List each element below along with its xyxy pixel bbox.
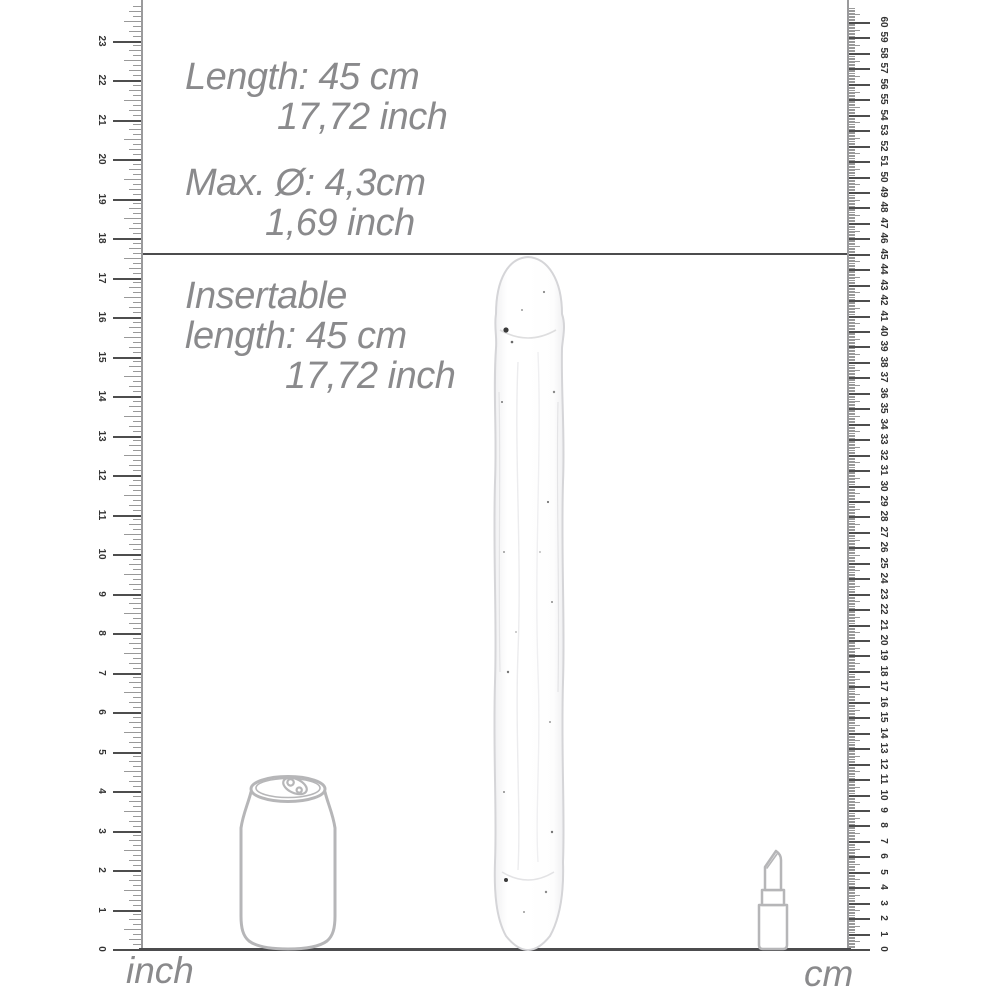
ruler-tick <box>849 941 860 942</box>
ruler-tick <box>849 858 855 859</box>
ruler-tick <box>849 926 860 927</box>
ruler-tick <box>849 45 860 46</box>
ruler-tick <box>129 426 141 427</box>
ruler-tick <box>849 509 860 510</box>
ruler-tick <box>849 227 855 228</box>
ruler-tick <box>849 78 855 79</box>
ruler-number: 30 <box>875 477 893 495</box>
ruler-tick <box>849 218 855 219</box>
ruler-tick <box>849 192 870 194</box>
ruler-tick <box>124 258 141 259</box>
ruler-tick <box>849 852 855 853</box>
ruler-tick <box>129 90 141 91</box>
ruler-tick <box>849 472 855 473</box>
ruler-tick <box>849 725 860 726</box>
product-dimension-diagram: 01234567891011121314151617181920212223 0… <box>0 0 1000 1000</box>
ruler-tick <box>849 84 870 86</box>
ruler-tick <box>849 770 855 771</box>
ruler-tick <box>849 711 855 712</box>
ruler-number: 38 <box>875 353 893 371</box>
ruler-tick <box>849 898 855 899</box>
ruler-tick <box>133 174 141 175</box>
ruler-tick <box>849 512 855 513</box>
ruler-tick <box>849 818 860 819</box>
ruler-tick <box>849 334 855 335</box>
ruler-tick <box>849 407 855 408</box>
ruler-tick <box>113 633 141 635</box>
ruler-tick <box>133 579 141 580</box>
ruler-tick <box>849 76 860 77</box>
ruler-tick <box>849 445 855 446</box>
ruler-tick <box>849 294 855 295</box>
ruler-tick <box>849 278 855 279</box>
ruler-tick <box>133 727 141 728</box>
ruler-tick <box>849 118 855 119</box>
ruler-tick <box>113 199 141 201</box>
ruler-tick <box>849 280 855 281</box>
ruler-tick <box>849 139 855 140</box>
ruler-tick <box>849 439 870 441</box>
ruler-tick <box>849 827 855 828</box>
ruler-tick <box>849 699 855 700</box>
ruler-tick <box>849 88 855 89</box>
ruler-tick <box>849 243 855 244</box>
ruler-tick <box>124 929 141 930</box>
ruler-tick <box>849 288 855 289</box>
ruler-tick <box>849 25 855 26</box>
ruler-tick <box>133 105 141 106</box>
ruler-tick <box>849 53 870 55</box>
ruler-tick <box>133 16 141 17</box>
ruler-tick <box>129 544 141 545</box>
ruler-tick <box>849 136 855 137</box>
ruler-tick <box>849 232 855 233</box>
ruler-tick <box>849 683 855 684</box>
ruler-number: 5 <box>93 743 111 761</box>
ruler-tick <box>849 113 855 114</box>
ruler-tick <box>849 47 855 48</box>
ruler-number: 21 <box>875 616 893 634</box>
ruler-tick <box>849 694 860 695</box>
ruler-tick <box>849 402 855 403</box>
ruler-tick <box>849 912 855 913</box>
ruler-tick <box>849 201 855 202</box>
ruler-tick <box>849 702 870 704</box>
ruler-tick <box>849 198 855 199</box>
ruler-tick <box>849 59 855 60</box>
ruler-tick <box>849 436 855 437</box>
ruler-tick <box>849 427 855 428</box>
inch-ruler: 01234567891011121314151617181920212223 <box>88 0 143 1000</box>
ruler-tick <box>849 838 855 839</box>
ruler-tick <box>849 319 855 320</box>
ruler-tick <box>849 70 855 71</box>
ruler-tick <box>849 371 855 372</box>
ruler-tick <box>849 561 855 562</box>
ruler-tick <box>133 539 141 540</box>
ruler-tick <box>849 404 855 405</box>
ruler-tick <box>849 112 855 113</box>
ruler-tick <box>113 673 141 675</box>
ruler-tick <box>849 271 855 272</box>
ruler-tick <box>849 623 855 624</box>
ruler-tick <box>129 584 141 585</box>
ruler-tick <box>849 226 855 227</box>
ruler-tick <box>849 821 855 822</box>
ruler-tick <box>133 65 141 66</box>
ruler-tick <box>849 946 855 947</box>
diameter-spec: Max. Ø: 4,3cm 1,69 inch <box>185 163 426 243</box>
ruler-tick <box>849 496 855 497</box>
ruler-tick <box>849 479 855 480</box>
ruler-tick <box>849 700 855 701</box>
ruler-tick <box>849 470 870 472</box>
ruler-tick <box>133 944 141 945</box>
ruler-number: 3 <box>875 894 893 912</box>
ruler-tick <box>133 421 141 422</box>
ruler-tick <box>849 713 855 714</box>
ruler-tick <box>849 748 870 750</box>
ruler-tick <box>849 214 855 215</box>
ruler-tick <box>849 640 870 642</box>
ruler-tick <box>849 163 855 164</box>
ruler-tick <box>113 278 141 280</box>
ruler-tick <box>849 244 855 245</box>
ruler-tick <box>849 628 855 629</box>
ruler-tick <box>849 240 855 241</box>
ruler-tick <box>849 172 855 173</box>
ruler-tick <box>849 181 855 182</box>
ruler-tick <box>113 317 141 319</box>
ruler-tick <box>849 847 855 848</box>
ruler-tick <box>849 864 860 865</box>
ruler-tick <box>129 268 141 269</box>
ruler-tick <box>849 419 855 420</box>
ruler-tick <box>849 674 855 675</box>
ruler-tick <box>133 75 141 76</box>
ruler-tick <box>849 798 855 799</box>
ruler-tick <box>849 481 855 482</box>
ruler-tick <box>849 31 855 32</box>
ruler-tick <box>849 903 870 905</box>
ruler-tick <box>849 405 855 406</box>
ruler-tick <box>849 87 855 88</box>
ruler-number: 45 <box>875 245 893 263</box>
ruler-tick <box>129 643 141 644</box>
ruler-tick <box>849 553 855 554</box>
ruler-tick <box>133 786 141 787</box>
ruler-tick <box>129 742 141 743</box>
ruler-tick <box>129 564 141 565</box>
ruler-tick <box>129 327 141 328</box>
ruler-tick <box>849 586 860 587</box>
ruler-tick <box>849 558 855 559</box>
ruler-tick <box>849 540 860 541</box>
ruler-tick <box>133 677 141 678</box>
ruler-tick <box>133 648 141 649</box>
ruler-tick <box>133 203 141 204</box>
ruler-tick <box>849 788 855 789</box>
ruler-tick <box>849 107 860 108</box>
ruler-tick <box>133 796 141 797</box>
ruler-tick <box>849 751 855 752</box>
lipstick-bullet <box>765 851 781 890</box>
ruler-tick <box>849 859 855 860</box>
ruler-tick <box>849 617 860 618</box>
ruler-tick <box>849 44 855 45</box>
ruler-tick <box>849 635 855 636</box>
ruler-tick <box>113 910 141 912</box>
dildo-body <box>494 257 564 950</box>
ruler-tick <box>113 870 141 872</box>
ruler-tick <box>133 263 141 264</box>
ruler-tick <box>849 513 855 514</box>
ruler-tick <box>849 254 870 256</box>
ruler-tick <box>849 892 855 893</box>
ruler-number: 34 <box>875 415 893 433</box>
ruler-tick <box>129 761 141 762</box>
ruler-tick <box>849 830 855 831</box>
ruler-tick <box>849 676 855 677</box>
ruler-tick <box>849 615 855 616</box>
ruler-tick <box>849 110 855 111</box>
ruler-tick <box>849 397 855 398</box>
ruler-tick <box>849 920 855 921</box>
ruler-tick <box>849 498 855 499</box>
ruler-tick <box>133 806 141 807</box>
ruler-tick <box>113 475 141 477</box>
ruler-tick <box>849 569 855 570</box>
ruler-tick <box>849 64 855 65</box>
ruler-tick <box>849 940 855 941</box>
ruler-tick <box>849 442 855 443</box>
ruler-tick <box>849 598 855 599</box>
ruler-number: 50 <box>875 168 893 186</box>
ruler-tick <box>849 717 870 719</box>
ruler-tick <box>849 221 855 222</box>
ruler-tick <box>849 67 855 68</box>
ruler-number: 10 <box>875 786 893 804</box>
ruler-tick <box>849 816 855 817</box>
ruler-tick <box>129 189 141 190</box>
ruler-tick <box>133 302 141 303</box>
ruler-tick <box>133 115 141 116</box>
ruler-tick <box>849 937 855 938</box>
ruler-tick <box>849 396 855 397</box>
ruler-tick <box>133 144 141 145</box>
ruler-tick <box>849 773 855 774</box>
ruler-tick <box>124 337 141 338</box>
ruler-number: 58 <box>875 44 893 62</box>
ruler-tick <box>849 538 855 539</box>
ruler-tick <box>849 790 855 791</box>
ruler-tick <box>133 55 141 56</box>
ruler-tick <box>849 845 855 846</box>
ruler-tick <box>849 781 855 782</box>
ruler-tick <box>849 652 855 653</box>
ruler-tick <box>133 914 141 915</box>
ruler-tick <box>849 122 860 123</box>
ruler-tick <box>849 693 855 694</box>
ruler-tick <box>849 574 855 575</box>
ruler-tick <box>113 554 141 556</box>
ruler-tick <box>849 308 860 309</box>
lipstick-collar <box>762 890 784 905</box>
ruler-tick <box>113 515 141 517</box>
ruler-tick <box>849 787 860 788</box>
ruler-tick <box>849 367 855 368</box>
ruler-tick <box>849 819 855 820</box>
ruler-tick <box>849 756 860 757</box>
ruler-tick <box>849 183 855 184</box>
ruler-tick <box>849 297 855 298</box>
ruler-tick <box>849 138 860 139</box>
ruler-number: 52 <box>875 137 893 155</box>
ruler-tick <box>849 625 870 627</box>
ruler-tick <box>849 331 870 333</box>
ruler-number: 25 <box>875 554 893 572</box>
ruler-tick <box>849 581 855 582</box>
ruler-tick <box>849 351 855 352</box>
ruler-tick <box>849 359 855 360</box>
ruler-tick <box>849 516 870 518</box>
length-spec: Length: 45 cm 17,72 inch <box>185 57 447 137</box>
ruler-tick <box>129 919 141 920</box>
ruler-tick <box>849 744 855 745</box>
ruler-number: 12 <box>93 466 111 484</box>
ruler-tick <box>849 435 855 436</box>
ruler-tick <box>849 393 870 395</box>
ruler-tick <box>849 302 855 303</box>
cm-ruler: 0123456789101112131415161718192021222324… <box>847 0 902 1000</box>
ruler-tick <box>849 629 855 630</box>
ruler-tick <box>129 31 141 32</box>
ruler-tick <box>849 101 855 102</box>
ruler-tick <box>129 801 141 802</box>
ruler-tick <box>129 307 141 308</box>
ruler-tick <box>129 682 141 683</box>
ruler-tick <box>129 524 141 525</box>
ruler-tick <box>133 371 141 372</box>
ruler-tick <box>849 448 855 449</box>
ruler-tick <box>849 433 855 434</box>
ruler-number: 21 <box>93 111 111 129</box>
ruler-tick <box>849 326 855 327</box>
ruler-tick <box>849 906 855 907</box>
ruler-tick <box>849 719 855 720</box>
ruler-number: 13 <box>93 427 111 445</box>
ruler-tick <box>849 329 855 330</box>
ruler-tick <box>133 401 141 402</box>
ruler-tick <box>849 909 855 910</box>
ruler-tick <box>849 714 855 715</box>
ruler-tick <box>849 883 855 884</box>
ruler-tick <box>133 233 141 234</box>
cm-unit-label: cm <box>804 953 853 995</box>
ruler-tick <box>849 881 855 882</box>
ruler-tick <box>129 663 141 664</box>
ruler-number: 7 <box>93 664 111 682</box>
ruler-tick <box>849 212 855 213</box>
ruler-tick <box>133 816 141 817</box>
ruler-tick <box>849 229 855 230</box>
ruler-tick <box>133 589 141 590</box>
ruler-tick <box>133 737 141 738</box>
ruler-tick <box>849 300 870 302</box>
ruler-tick <box>133 569 141 570</box>
ruler-number: 14 <box>93 387 111 405</box>
ruler-tick <box>133 529 141 530</box>
ruler-tick <box>849 92 860 93</box>
ruler-tick <box>849 682 855 683</box>
ruler-tick <box>849 345 855 346</box>
ruler-tick <box>849 133 855 134</box>
ruler-tick <box>113 436 141 438</box>
length-spec-inch: 17,72 inch <box>277 97 447 137</box>
ruler-tick <box>849 65 855 66</box>
ruler-tick <box>849 209 855 210</box>
ruler-tick <box>129 781 141 782</box>
ruler-number: 0 <box>93 940 111 958</box>
ruler-tick <box>133 697 141 698</box>
ruler-tick <box>849 550 855 551</box>
ruler-tick <box>849 710 860 711</box>
ruler-tick <box>849 688 855 689</box>
ruler-tick <box>849 104 855 105</box>
ruler-tick <box>849 158 855 159</box>
ruler-number: 56 <box>875 75 893 93</box>
ruler-tick <box>849 241 855 242</box>
ruler-tick <box>133 855 141 856</box>
ruler-tick <box>849 646 855 647</box>
ruler-tick <box>849 850 855 851</box>
ruler-tick <box>849 884 855 885</box>
ruler-tick <box>849 303 855 304</box>
ruler-tick <box>849 893 855 894</box>
ruler-number: 54 <box>875 106 893 124</box>
ruler-number: 19 <box>875 646 893 664</box>
ruler-tick <box>849 808 855 809</box>
ruler-tick <box>849 150 855 151</box>
ruler-tick <box>124 692 141 693</box>
ruler-tick <box>849 360 855 361</box>
ruler-tick <box>133 26 141 27</box>
ruler-tick <box>849 782 855 783</box>
ruler-tick <box>849 612 855 613</box>
ruler-tick <box>849 305 855 306</box>
ruler-tick <box>849 801 855 802</box>
ruler-tick <box>849 249 855 250</box>
ruler-tick <box>849 750 855 751</box>
ruler-tick <box>113 41 141 43</box>
ruler-tick <box>849 560 855 561</box>
ruler-tick <box>849 706 855 707</box>
ruler-tick <box>849 203 855 204</box>
ruler-tick <box>849 166 855 167</box>
ruler-tick <box>849 620 855 621</box>
ruler-tick <box>849 643 855 644</box>
ruler-tick <box>849 422 855 423</box>
ruler-tick <box>849 642 855 643</box>
ruler-tick <box>849 73 855 74</box>
ruler-tick <box>849 530 855 531</box>
ruler-tick <box>113 80 141 82</box>
ruler-tick <box>849 886 855 887</box>
ruler-tick <box>849 785 855 786</box>
ruler-tick <box>849 408 870 410</box>
ruler-tick <box>133 391 141 392</box>
ruler-tick <box>133 687 141 688</box>
